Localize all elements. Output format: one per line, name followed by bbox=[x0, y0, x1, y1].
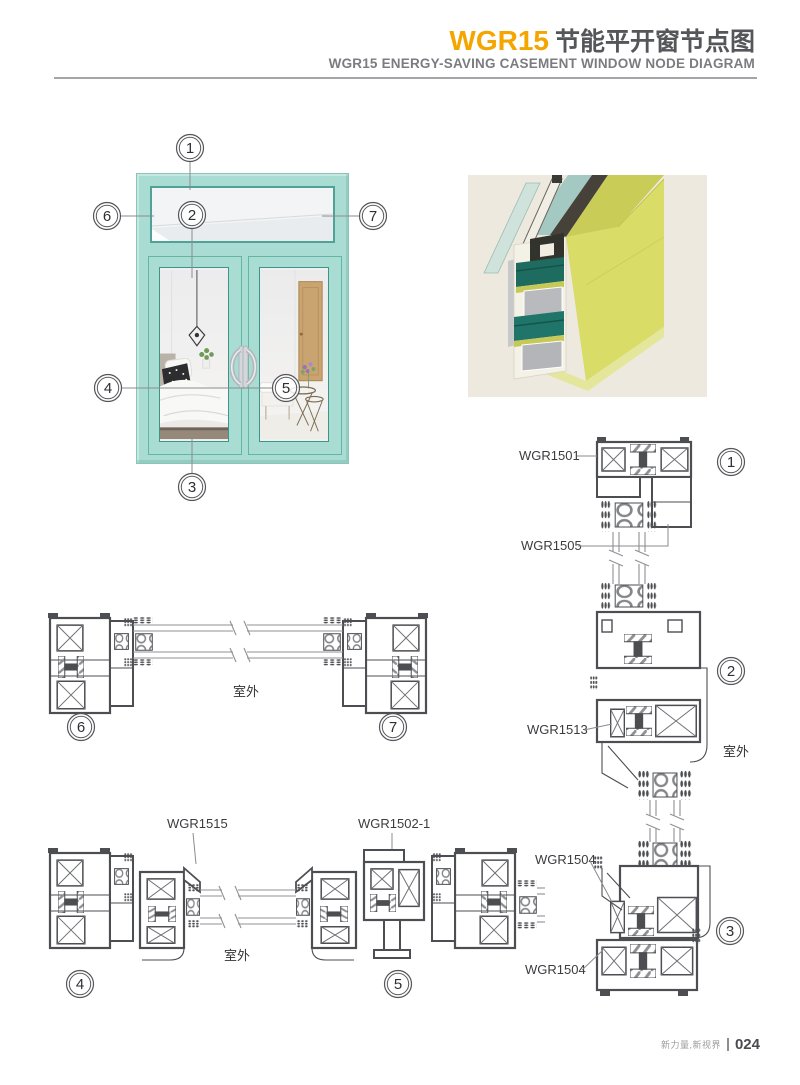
section-callout-5: 5 bbox=[385, 971, 412, 998]
label-wgr1513: WGR1513 bbox=[527, 722, 588, 737]
section-4-5: WGR1515 WGR1502-1 室外 4 5 bbox=[28, 812, 558, 1007]
section-vertical-right: WGR1501 WGR1505 WGR1513 WGR1504 WGR1504 … bbox=[490, 428, 790, 1018]
section-6-7: 室外 6 7 bbox=[28, 588, 468, 758]
illustration-callouts: 1 2 6 7 4 5 3 bbox=[78, 128, 408, 508]
bottom-sash-profile bbox=[594, 856, 710, 938]
footer-divider bbox=[727, 1038, 729, 1051]
svg-text:6: 6 bbox=[103, 208, 111, 225]
sash-profile-b bbox=[140, 868, 200, 960]
header-divider bbox=[54, 77, 757, 79]
svg-text:7: 7 bbox=[369, 208, 377, 225]
head-frame-profile bbox=[597, 437, 691, 527]
callout-1: 1 bbox=[177, 135, 204, 162]
mullion-profile-d bbox=[364, 850, 424, 958]
page-header: WGR15节能平开窗节点图 WGR15 ENERGY-SAVING CASEME… bbox=[0, 0, 800, 90]
section-callout-1: 1 bbox=[718, 449, 745, 476]
glass-unit-lower bbox=[638, 770, 692, 870]
svg-text:1: 1 bbox=[186, 140, 194, 157]
callout-4: 4 bbox=[95, 375, 122, 402]
section-callout-4: 4 bbox=[67, 971, 94, 998]
svg-text:4: 4 bbox=[104, 380, 112, 397]
page-number: 024 bbox=[735, 1036, 760, 1053]
outdoor-label-bottom: 室外 bbox=[224, 948, 250, 963]
callout-7: 7 bbox=[360, 203, 387, 230]
sash-profile-c bbox=[296, 868, 356, 960]
glass-unit bbox=[133, 617, 343, 666]
svg-text:5: 5 bbox=[394, 976, 402, 993]
svg-text:2: 2 bbox=[727, 663, 735, 680]
svg-text:1: 1 bbox=[727, 454, 735, 471]
svg-text:3: 3 bbox=[188, 479, 196, 496]
svg-text:7: 7 bbox=[389, 719, 397, 736]
label-wgr1502-1: WGR1502-1 bbox=[358, 816, 430, 831]
glass-unit-upper bbox=[601, 500, 657, 612]
jamb-profile-a bbox=[48, 848, 133, 948]
page-footer: 新力量,新视界 024 bbox=[661, 1036, 760, 1053]
label-wgr1504-lower: WGR1504 bbox=[525, 962, 586, 977]
profile-render-image bbox=[468, 175, 707, 397]
page-title: WGR15节能平开窗节点图 bbox=[449, 22, 755, 58]
product-code: WGR15 bbox=[449, 25, 549, 56]
svg-text:6: 6 bbox=[77, 719, 85, 736]
jamb-profile-left bbox=[48, 613, 133, 713]
label-wgr1515: WGR1515 bbox=[167, 816, 228, 831]
svg-text:2: 2 bbox=[188, 207, 196, 224]
catalog-page: { "header": { "product_code": "WGR15", "… bbox=[0, 0, 800, 1085]
section-callout-3: 3 bbox=[717, 918, 744, 945]
transom-profile bbox=[590, 612, 707, 788]
callout-3: 3 bbox=[179, 474, 206, 501]
outdoor-label-right: 室外 bbox=[723, 744, 749, 759]
svg-text:3: 3 bbox=[726, 923, 734, 940]
outdoor-label-mid: 室外 bbox=[233, 684, 259, 699]
jamb-profile-right bbox=[343, 613, 428, 713]
callout-2: 2 bbox=[179, 202, 206, 229]
label-wgr1504-upper: WGR1504 bbox=[535, 852, 596, 867]
callout-6: 6 bbox=[94, 203, 121, 230]
footer-tagline: 新力量,新视界 bbox=[661, 1038, 721, 1051]
callout-5: 5 bbox=[273, 375, 300, 402]
section-callout-6: 6 bbox=[68, 714, 95, 741]
profile-render bbox=[468, 175, 707, 397]
title-english: WGR15 ENERGY-SAVING CASEMENT WINDOW NODE… bbox=[329, 56, 755, 71]
svg-text:5: 5 bbox=[282, 380, 290, 397]
title-chinese: 节能平开窗节点图 bbox=[555, 28, 755, 56]
glass-unit bbox=[200, 886, 296, 928]
label-wgr1501: WGR1501 bbox=[519, 448, 580, 463]
svg-text:4: 4 bbox=[76, 976, 84, 993]
section-callout-2: 2 bbox=[718, 658, 745, 685]
section-callout-7: 7 bbox=[380, 714, 407, 741]
label-wgr1505: WGR1505 bbox=[521, 538, 582, 553]
